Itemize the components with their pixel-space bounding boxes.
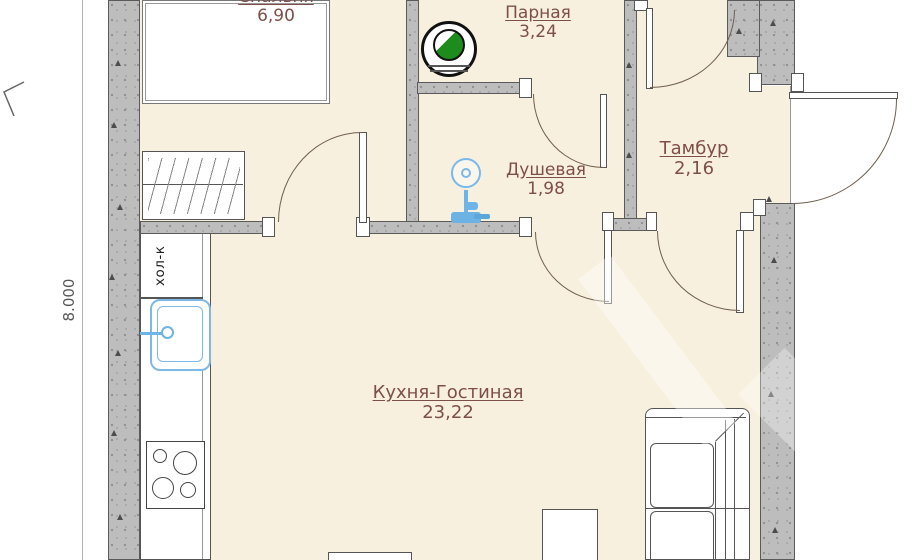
room-name: Кухня-Гостиная: [373, 383, 524, 403]
burner: [152, 477, 174, 499]
wall-mark-icon: [117, 514, 123, 520]
door-jamb: [519, 217, 532, 237]
wall-mark-icon: [626, 62, 632, 68]
room-area: 1,98: [506, 180, 586, 199]
door-jamb: [602, 212, 614, 231]
dimension-line: [82, 0, 83, 560]
sauna-stove-icon: [421, 21, 477, 77]
door-jamb: [791, 73, 804, 92]
wall-main-middle: [368, 221, 521, 234]
wall-mark-icon: [111, 122, 117, 128]
sauna-stove-vent: [430, 70, 468, 72]
burner: [180, 482, 196, 498]
sofa: [645, 408, 750, 560]
floor-plan: 8.000 хол-к: [0, 0, 920, 560]
wall-main-left: [140, 221, 263, 234]
wardrobe-hangers: [148, 158, 240, 214]
wall-mark-icon: [766, 196, 772, 202]
room-label-kitchen: Кухня-Гостиная 23,22: [373, 383, 524, 423]
table: [328, 552, 412, 560]
shower-icon: [448, 158, 498, 224]
wall-right-bottom: [760, 203, 795, 560]
door-jamb: [262, 217, 275, 237]
sink-faucet-icon: [161, 326, 174, 339]
sofa-back-line: [646, 417, 746, 418]
sofa-arm-line: [715, 442, 716, 559]
fridge-label: хол-к: [152, 238, 192, 294]
wall-shower-vestibule-divider: [624, 0, 637, 220]
shower-valve: [466, 202, 478, 210]
counter-inner-edge: [202, 231, 203, 559]
wall-right-top: [757, 0, 795, 85]
wall-steam-shower-divider: [417, 82, 525, 94]
room-label-shower: Душевая 1,98: [506, 161, 586, 199]
sofa-split-line: [646, 508, 749, 509]
room-label-steam: Парная 3,24: [505, 4, 571, 42]
sauna-stove-vent: [428, 65, 470, 67]
room-name: Душевая: [506, 161, 586, 180]
door-jamb: [519, 78, 532, 98]
sofa-cushion: [650, 443, 714, 508]
burner: [153, 449, 167, 463]
cooktop-icon: [146, 441, 205, 509]
wall-mark-icon: [115, 350, 121, 356]
room-area: 2,16: [660, 159, 729, 179]
entry-door-leaf: [789, 92, 898, 99]
side-table: [542, 509, 598, 560]
room-area: 23,22: [373, 403, 524, 423]
burner: [173, 451, 197, 475]
entry-opening-floor: [761, 86, 791, 204]
wall-mark-icon: [111, 430, 117, 436]
entry-door-swing-arc: [792, 99, 897, 204]
sauna-stove-core: [433, 29, 465, 61]
room-label-vestibule: Тамбур 2,16: [660, 139, 729, 179]
door-jamb: [740, 212, 754, 231]
wardrobe: [142, 151, 245, 220]
wall-mark-icon: [771, 257, 777, 263]
shower-spout: [474, 214, 490, 219]
wall-mark-icon: [736, 28, 742, 34]
wall-mark-icon: [626, 152, 632, 158]
wall-mark-icon: [772, 527, 778, 533]
door-jamb: [753, 199, 766, 216]
dimension-label: 8.000: [60, 270, 76, 330]
dimension-tick-icon: [0, 80, 26, 120]
room-area: 3,24: [505, 23, 571, 42]
shower-head-center: [461, 168, 471, 178]
room-area: 6,90: [238, 7, 314, 26]
wall-mark-icon: [770, 20, 776, 26]
door-jamb: [646, 212, 657, 231]
door-jamb: [749, 73, 762, 92]
room-name: Тамбур: [660, 139, 729, 159]
wall-mark-icon: [768, 391, 774, 397]
wall-mark-icon: [117, 204, 123, 210]
sofa-arm-line: [734, 419, 735, 559]
wall-mark-icon: [109, 274, 115, 280]
sofa-arm-line: [725, 420, 726, 559]
room-name: Парная: [505, 4, 571, 23]
sofa-cushion: [650, 511, 714, 559]
sink-icon: [150, 299, 211, 371]
wall-left-exterior: [108, 0, 140, 560]
room-label-bedroom: Спальня 6,90: [238, 0, 314, 26]
wall-mark-icon: [115, 60, 121, 66]
wall-main-foot: [612, 218, 649, 231]
wall-bedroom-divider: [406, 0, 419, 234]
